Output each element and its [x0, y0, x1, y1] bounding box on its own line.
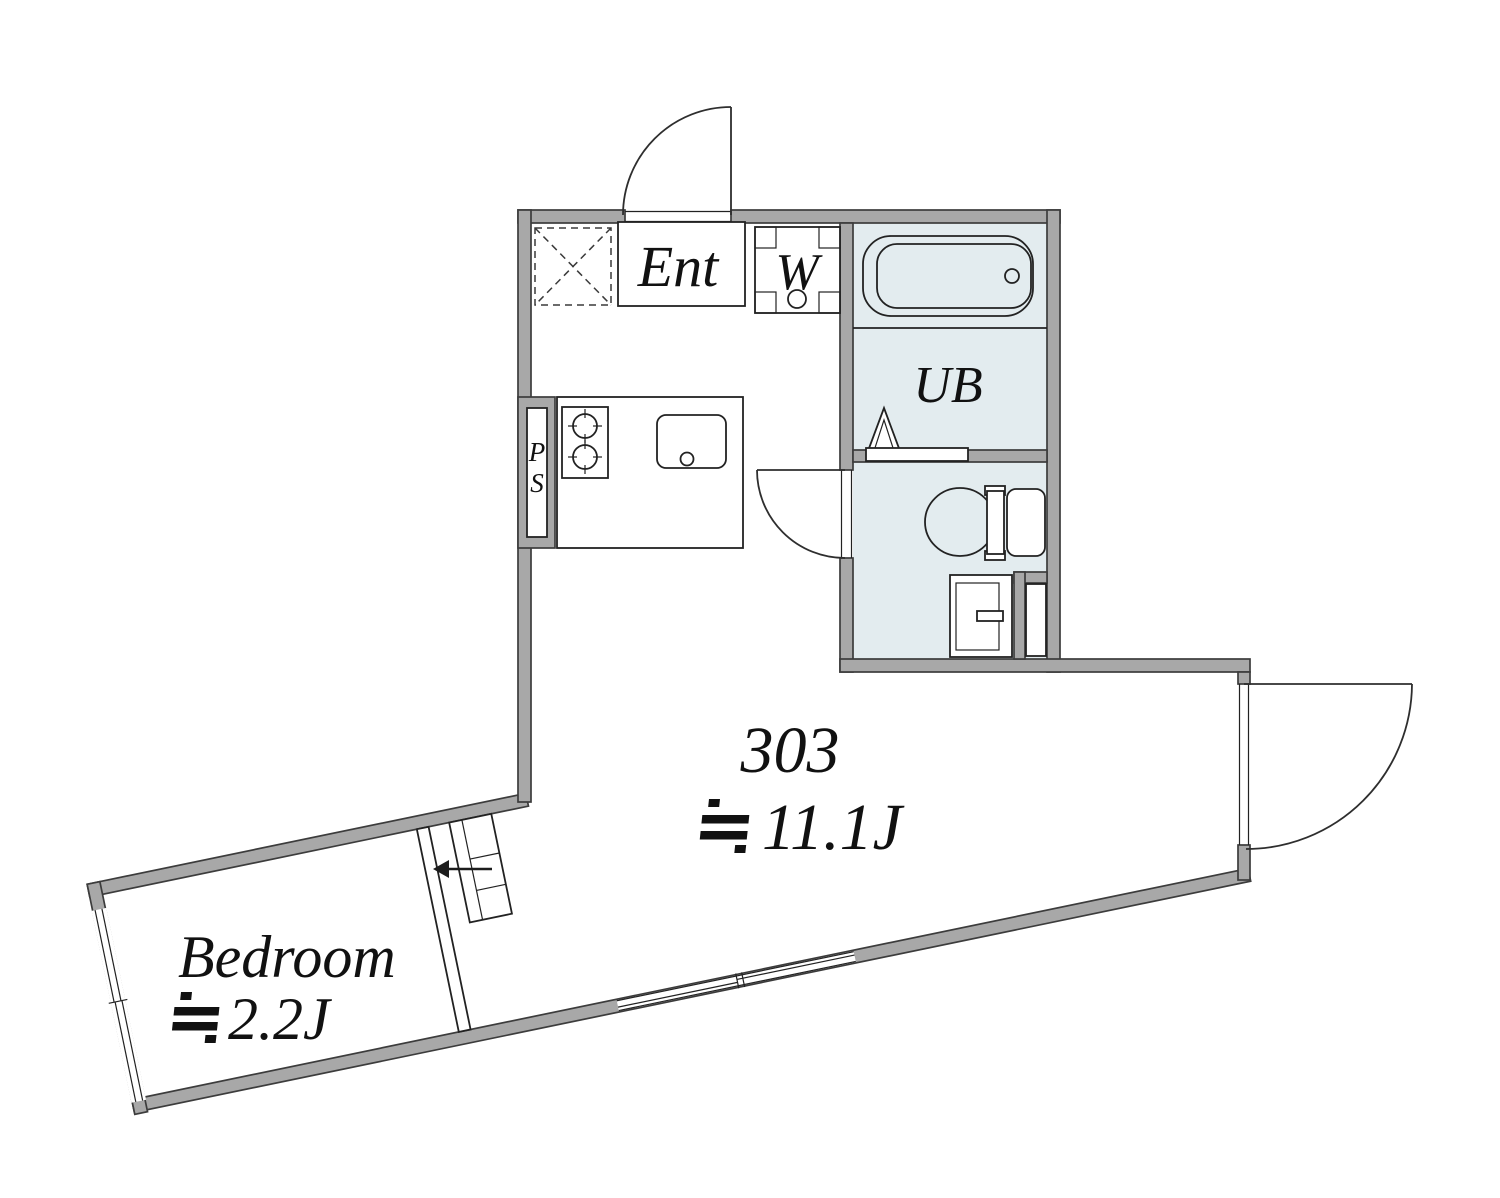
mid-wall-upper — [840, 223, 853, 470]
living-window — [616, 949, 856, 1013]
entrance-door — [623, 107, 731, 215]
unit-bath-label: UB — [913, 357, 982, 414]
bedroom-area-label: 2.2J — [228, 986, 332, 1052]
unit-number-label: 303 — [740, 714, 840, 787]
pipe-space-label-p: P — [528, 437, 546, 467]
vanity-cabinet — [950, 575, 1012, 657]
washer-label: W — [775, 244, 823, 301]
toilet-seat-hinge — [987, 491, 1004, 554]
floorplan-page: P S Ent W UB 303 11.1J Bedroom — [0, 0, 1500, 1198]
approx-equal-icon — [698, 799, 751, 853]
top-wall-right — [731, 210, 1060, 223]
duct-box — [1026, 584, 1046, 656]
bedroom-window — [90, 907, 148, 1103]
bath-threshold — [866, 448, 968, 461]
entrance-label: Ent — [637, 234, 720, 299]
toilet-tank — [1007, 489, 1045, 556]
main-area-label: 11.1J — [762, 791, 905, 864]
bottom-wall-upper-block — [840, 659, 1250, 672]
bedroom-label: Bedroom — [178, 924, 396, 990]
floorplan-canvas: P S Ent W UB 303 11.1J Bedroom — [0, 0, 1500, 1198]
vanity-handle — [977, 611, 1003, 621]
right-wall-stub-bottom — [1238, 845, 1250, 880]
right-wall-stub-top — [1238, 672, 1250, 684]
pipe-space-label-s: S — [530, 468, 544, 498]
toilet-door — [757, 470, 845, 558]
mid-wall-lower — [840, 558, 853, 672]
right-wall-upper-block — [1047, 210, 1060, 672]
approx-equal-icon — [171, 992, 221, 1043]
top-wall-left — [518, 210, 625, 223]
kitchen: P S — [527, 397, 743, 548]
shoe-cabinet — [535, 228, 611, 305]
balcony-door — [1244, 684, 1412, 849]
pipe-space: P S — [527, 408, 547, 537]
vanity-niche-stub — [1014, 572, 1025, 659]
